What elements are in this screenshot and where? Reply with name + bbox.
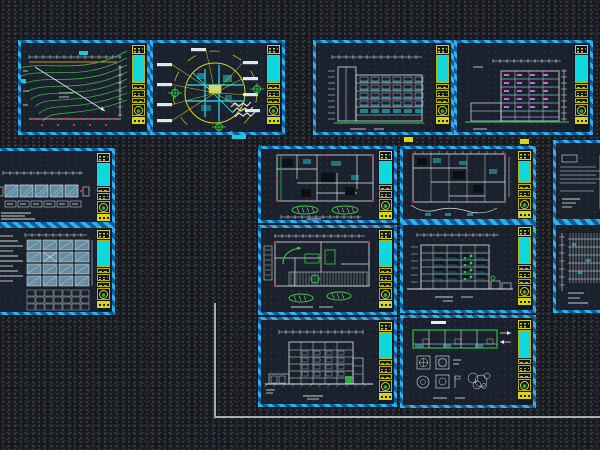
titleblock-header-icon [379,230,392,239]
titleblock-plot-area [518,161,531,183]
titleblock-plot-area [379,161,392,184]
building-section-2-titleblock [574,44,589,131]
titleblock-text-row [518,359,531,364]
sheet-wall-section-details[interactable] [400,315,536,408]
tree-logo-icon [577,106,586,115]
sheet-building-section-2[interactable] [454,40,593,135]
sheet-stair-detail-fragment[interactable] [553,140,600,222]
titleblock-header-icon [518,320,531,329]
titleblock-logo-icon [379,380,392,392]
drawing-text-fragment-1 [232,135,246,139]
titleblock-logo-icon [379,288,392,300]
floor-plan-upper-drawing [261,149,394,220]
titleblock-text-row [518,365,531,372]
titleblock-header-icon [575,45,588,54]
titleblock-footer [518,298,531,305]
drawing-text-fragment-3 [520,139,529,144]
tree-logo-icon [99,290,108,299]
sheet-floor-plan-typical[interactable] [400,146,536,222]
titleblock-plot-area [575,55,588,83]
building-section-2-drawing [457,43,590,132]
titleblock-header-icon [132,45,145,54]
sheet-roof-framing-plan[interactable] [0,225,115,315]
titleblock-text-row [518,190,531,197]
titleblock-text-row [379,191,392,198]
tree-logo-icon [381,290,390,299]
long-elevation-strip-titleblock [96,152,111,221]
titleblock-footer [97,301,110,308]
titleblock-logo-icon [97,201,110,213]
site-location-plan-titleblock [266,44,281,131]
titleblock-text-row [379,274,392,281]
titleblock-logo-icon [267,104,280,116]
titleblock-header-icon [518,227,531,236]
titleblock-text-row [379,366,392,373]
titleblock-header-icon [97,153,110,162]
grading-plan-drawing [21,43,147,132]
titleblock-text-row [575,98,588,103]
titleblock-text-row [97,187,110,192]
tree-logo-icon [381,382,390,391]
titleblock-plot-area [97,163,110,186]
sheet-floor-plan-upper[interactable] [258,146,397,223]
titleblock-footer [575,117,588,124]
titleblock-footer [97,214,110,221]
titleblock-text-row [518,265,531,270]
sheet-grading-plan[interactable] [18,40,150,135]
side-elevation-titleblock [517,226,532,309]
titleblock-text-row [267,98,280,103]
titleblock-footer [267,117,280,124]
tree-logo-icon [520,381,529,390]
titleblock-header-icon [518,151,531,160]
tree-logo-icon [269,106,278,115]
titleblock-plot-area [518,330,531,358]
titleblock-logo-icon [518,379,531,391]
floor-plan-ground-drawing [261,228,394,312]
wall-section-details-drawing [403,318,533,405]
titleblock-text-row [518,184,531,189]
titleblock-text-row [575,90,588,97]
titleblock-text-row [132,90,145,97]
sheet-street-elevation[interactable] [258,317,397,407]
titleblock-footer [379,301,392,308]
grading-plan-titleblock [131,44,146,131]
titleblock-footer [518,211,531,218]
titleblock-footer [518,392,531,399]
titleblock-text-row [575,84,588,89]
titleblock-text-row [436,90,449,97]
titleblock-plot-area [132,55,145,83]
titleblock-logo-icon [132,104,145,116]
titleblock-header-icon [379,151,392,160]
titleblock-text-row [379,268,392,273]
titleblock-logo-icon [518,198,531,210]
site-location-plan-drawing [153,43,282,132]
titleblock-text-row [379,360,392,365]
wall-section-details-titleblock [517,319,532,404]
street-elevation-titleblock [378,321,393,403]
cad-model-space[interactable] [0,0,600,450]
tree-logo-icon [134,106,143,115]
titleblock-logo-icon [575,104,588,116]
titleblock-text-row [267,90,280,97]
titleblock-plot-area [267,55,280,83]
building-section-1-titleblock [435,44,450,131]
titleblock-text-row [132,84,145,89]
titleblock-text-row [379,185,392,190]
titleblock-logo-icon [436,104,449,116]
drawing-text-fragment-2 [404,137,413,142]
floor-plan-upper-titleblock [378,150,393,219]
titleblock-text-row [379,374,392,379]
titleblock-text-row [379,282,392,287]
floor-plan-typical-drawing [403,149,533,219]
titleblock-footer [132,117,145,124]
tree-logo-icon [520,287,529,296]
titleblock-footer [379,212,392,219]
titleblock-plot-area [97,240,110,267]
sheet-side-elevation[interactable] [400,222,536,313]
side-elevation-drawing [403,225,533,310]
tree-logo-icon [381,201,390,210]
sheet-site-location-plan[interactable] [150,40,285,135]
sheet-building-section-1[interactable] [313,40,454,135]
titleblock-header-icon [97,230,110,239]
floor-plan-typical-titleblock [517,150,532,218]
titleblock-text-row [97,274,110,281]
titleblock-text-row [132,98,145,103]
titleblock-logo-icon [518,285,531,297]
stair-detail-fragment-drawing [556,143,600,219]
titleblock-plot-area [518,237,531,264]
street-elevation-drawing [261,320,394,404]
titleblock-text-row [518,373,531,378]
titleblock-footer [436,117,449,124]
sheet-wall-hatch-fragment[interactable] [553,222,600,313]
titleblock-text-row [436,84,449,89]
titleblock-logo-icon [379,199,392,211]
roof-framing-plan-titleblock [96,229,111,311]
titleblock-text-row [436,98,449,103]
titleblock-header-icon [379,322,392,331]
titleblock-header-icon [436,45,449,54]
titleblock-text-row [267,84,280,89]
titleblock-text-row [97,193,110,200]
titleblock-text-row [518,271,531,278]
wall-hatch-fragment-drawing [556,225,600,310]
sheet-long-elevation-strip[interactable] [0,148,115,225]
titleblock-plot-area [436,55,449,83]
floor-plan-ground-titleblock [378,229,393,311]
tree-logo-icon [520,200,529,209]
titleblock-plot-area [379,332,392,359]
sheet-floor-plan-ground[interactable] [258,225,397,315]
building-section-1-drawing [316,43,451,132]
titleblock-header-icon [267,45,280,54]
tree-logo-icon [99,203,108,212]
titleblock-plot-area [379,240,392,267]
titleblock-text-row [97,268,110,273]
titleblock-text-row [518,279,531,284]
titleblock-text-row [97,282,110,287]
tree-logo-icon [438,106,447,115]
titleblock-footer [379,393,392,400]
titleblock-logo-icon [97,288,110,300]
